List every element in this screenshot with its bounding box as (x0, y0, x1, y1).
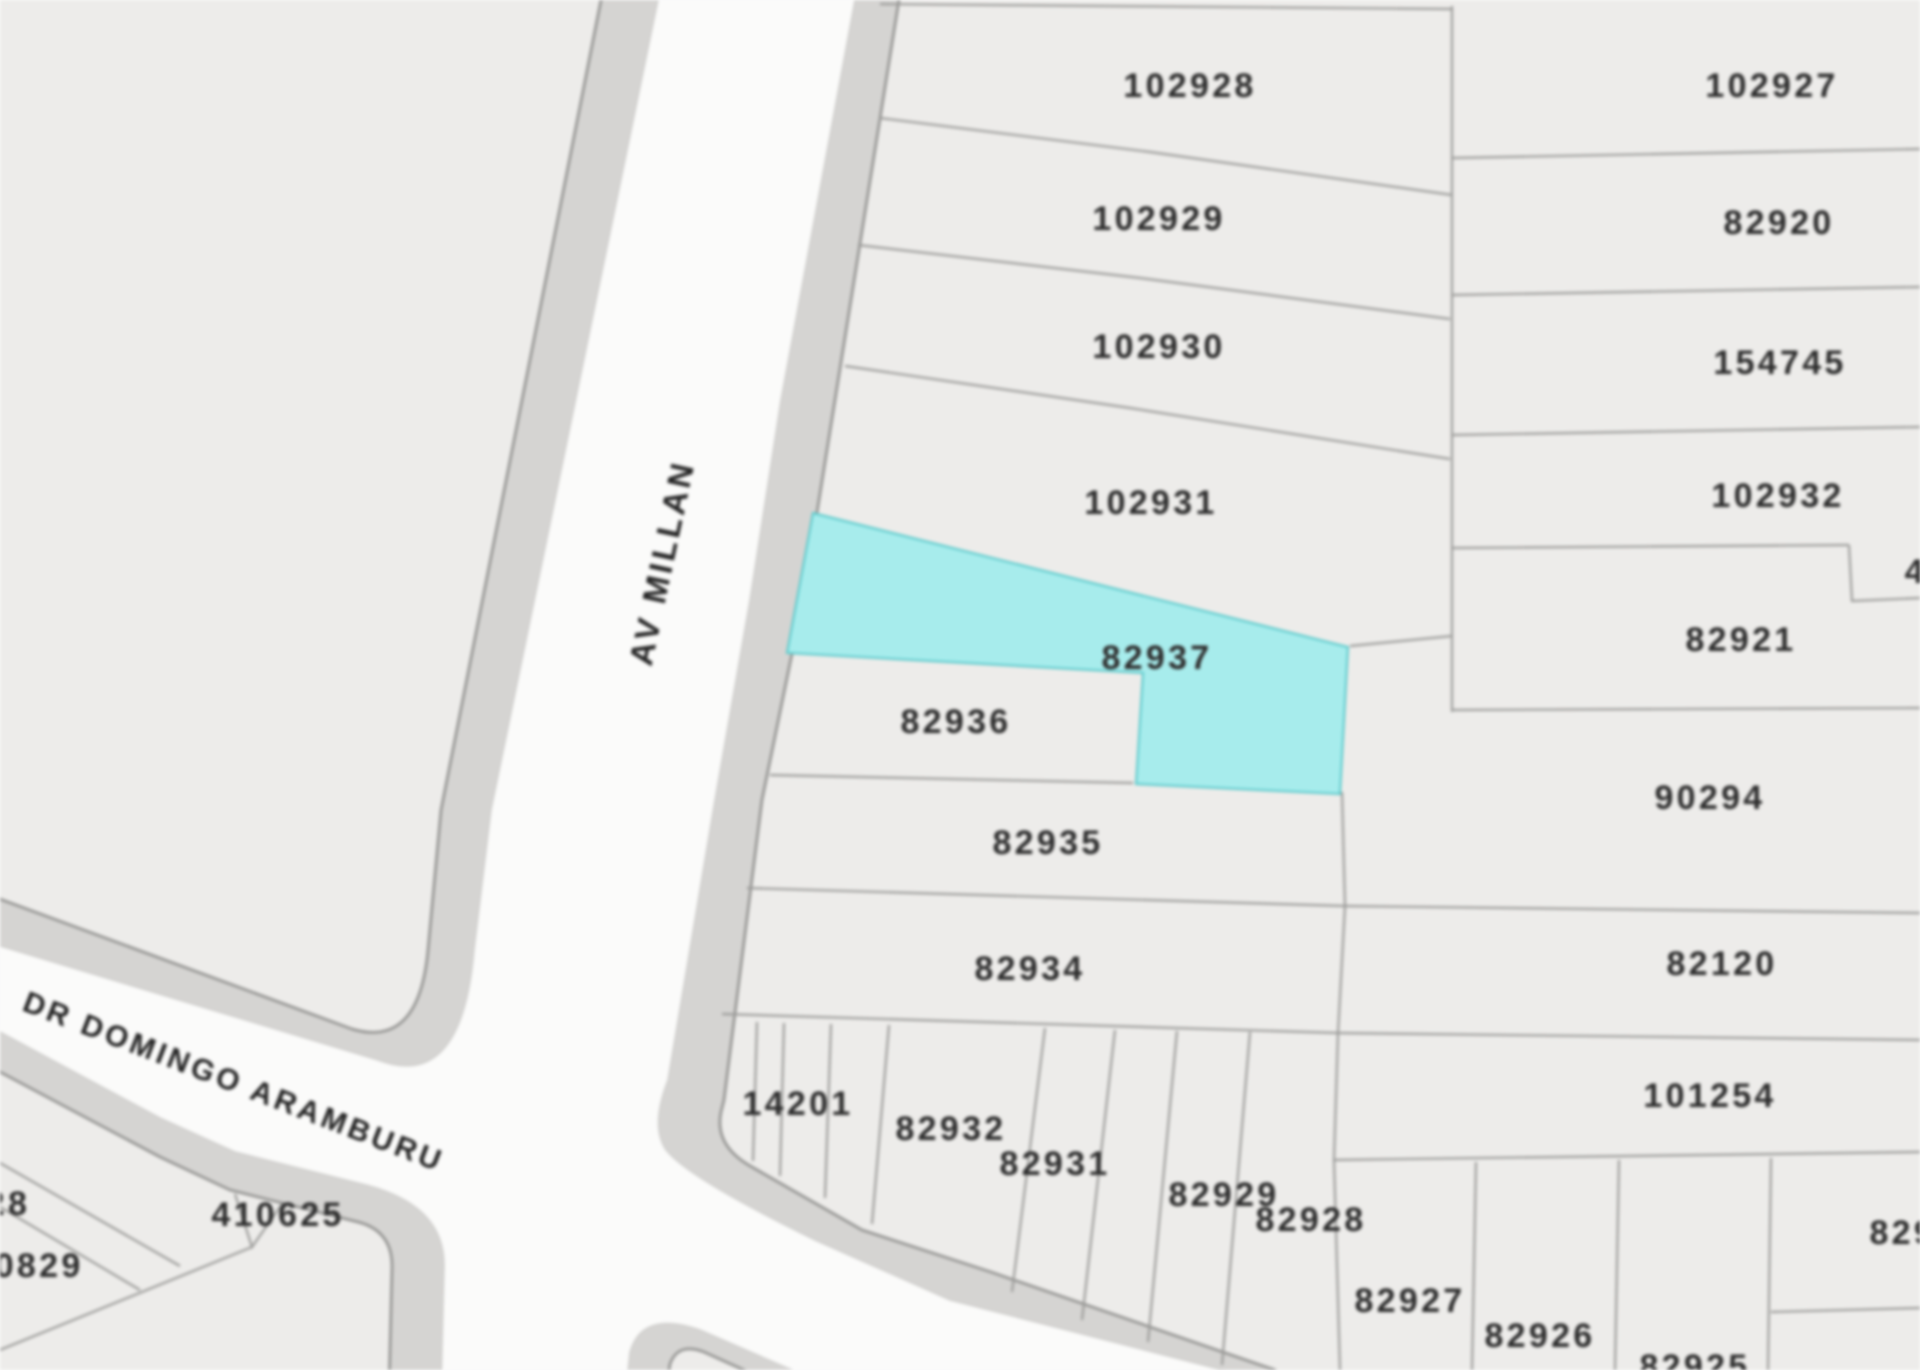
svg-text:410625: 410625 (211, 1196, 344, 1234)
svg-text:82932: 82932 (895, 1110, 1006, 1148)
svg-text:102932: 102932 (1711, 477, 1844, 515)
svg-text:102930: 102930 (1092, 328, 1225, 366)
svg-text:28: 28 (0, 1185, 30, 1223)
svg-text:82934: 82934 (974, 950, 1085, 988)
svg-text:102927: 102927 (1705, 67, 1838, 105)
svg-text:410: 410 (1905, 553, 1920, 591)
svg-text:102928: 102928 (1123, 67, 1256, 105)
svg-text:82926: 82926 (1484, 1317, 1595, 1355)
svg-text:82935: 82935 (992, 824, 1103, 862)
svg-text:102929: 102929 (1092, 200, 1225, 238)
svg-text:82925: 82925 (1639, 1348, 1750, 1370)
svg-text:82937: 82937 (1101, 639, 1212, 677)
svg-text:82936: 82936 (900, 703, 1011, 741)
svg-text:82920: 82920 (1723, 204, 1834, 242)
svg-text:102931: 102931 (1084, 484, 1217, 522)
svg-text:154745: 154745 (1713, 344, 1846, 382)
svg-text:82120: 82120 (1666, 945, 1777, 983)
svg-text:90294: 90294 (1654, 779, 1765, 817)
svg-text:82928: 82928 (1255, 1201, 1366, 1239)
svg-text:82931: 82931 (999, 1145, 1110, 1183)
svg-text:10829: 10829 (0, 1247, 84, 1285)
svg-text:101254: 101254 (1643, 1077, 1776, 1115)
svg-text:82923: 82923 (1869, 1214, 1920, 1252)
svg-text:82921: 82921 (1685, 621, 1796, 659)
svg-text:14201: 14201 (742, 1085, 853, 1123)
svg-text:82927: 82927 (1354, 1282, 1465, 1320)
